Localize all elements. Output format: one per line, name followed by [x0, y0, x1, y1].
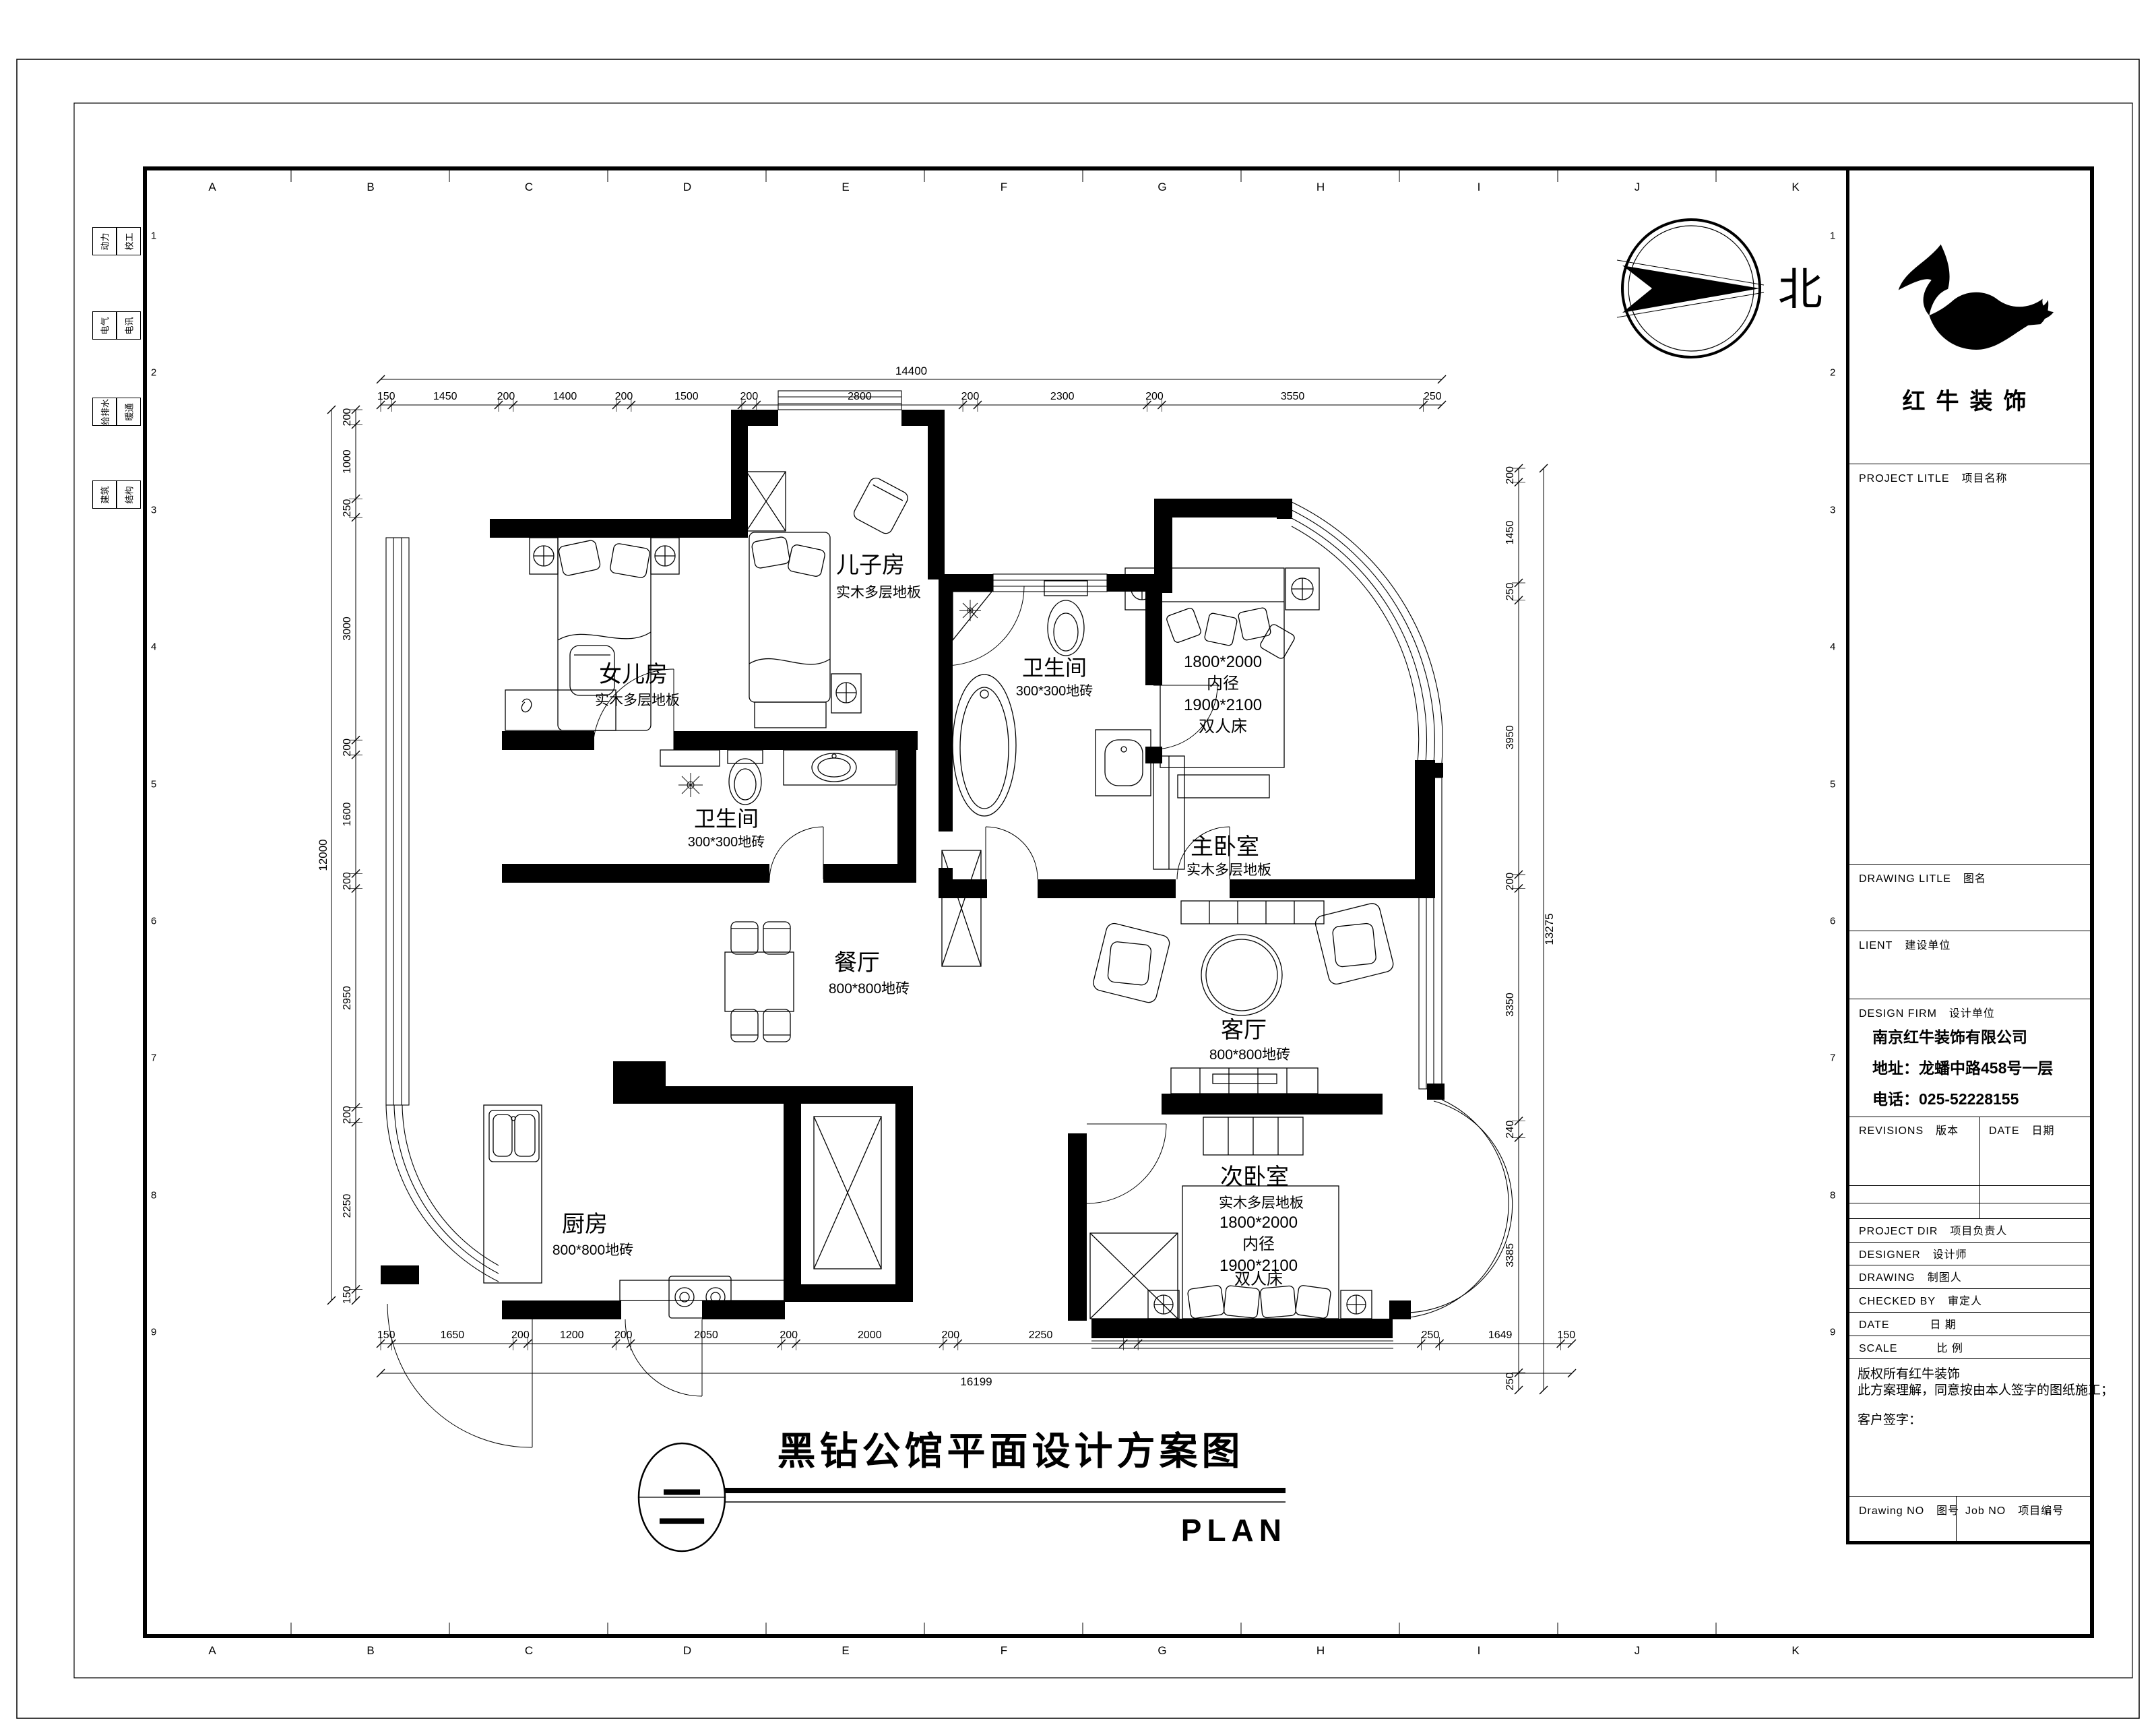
svg-text:1450: 1450: [433, 391, 457, 402]
svg-text:3350: 3350: [1504, 993, 1516, 1017]
north-arrow-icon: [1617, 220, 1764, 357]
svg-text:150: 150: [1557, 1329, 1575, 1341]
master-bed-note-3: 1900*2100: [1184, 696, 1262, 714]
row-number-1: 1: [1830, 230, 1835, 242]
sheet-index-number: 二: [639, 1468, 725, 1538]
row-number-4: 4: [151, 641, 156, 653]
svg-text:250: 250: [1424, 391, 1442, 402]
row-number-7: 7: [151, 1053, 156, 1064]
grid-letter-E: E: [842, 1644, 849, 1658]
row-number-9: 9: [1830, 1327, 1835, 1338]
row-number-6: 6: [1830, 916, 1835, 927]
field-project: PROJECT LITLE项目名称: [1859, 469, 2008, 485]
svg-text:2250: 2250: [1029, 1329, 1053, 1341]
svg-text:200: 200: [780, 1329, 798, 1341]
discipline-box: 动力: [92, 227, 117, 255]
grid-letter-J: J: [1635, 181, 1641, 194]
label-daughter: 女儿房: [599, 662, 668, 687]
grid-letter-I: I: [1478, 181, 1481, 194]
grid-letter-A: A: [208, 1644, 216, 1658]
discipline-box: 电气: [92, 311, 117, 340]
row-number-3: 3: [1830, 504, 1835, 515]
svg-text:200: 200: [511, 1329, 530, 1341]
grid-letter-A: A: [208, 181, 216, 194]
svg-text:200: 200: [1504, 873, 1516, 891]
discipline-box: 校工: [117, 227, 141, 255]
grid-letter-E: E: [842, 181, 849, 194]
svg-text:2250: 2250: [342, 1194, 353, 1218]
svg-text:13275: 13275: [1543, 913, 1556, 945]
svg-text:200: 200: [497, 391, 515, 402]
master-bed-note-2: 内径: [1207, 675, 1239, 693]
svg-text:200: 200: [1145, 391, 1164, 402]
brand-name: 红牛装饰: [1849, 383, 2090, 416]
field-designer: DESIGNER设计师: [1859, 1245, 1967, 1261]
master-bed-note-4: 双人床: [1199, 718, 1247, 736]
row-number-8: 8: [1830, 1189, 1835, 1201]
row-number-6: 6: [151, 916, 156, 927]
svg-text:2000: 2000: [858, 1329, 882, 1341]
svg-text:200: 200: [342, 1106, 353, 1124]
grid-letter-F: F: [1001, 1644, 1007, 1658]
discipline-box: 电讯: [117, 311, 141, 340]
grid-letter-D: D: [683, 1644, 691, 1658]
svg-text:2300: 2300: [1050, 391, 1075, 402]
row-number-2: 2: [1830, 367, 1835, 379]
second-bed-note-2: 内径: [1242, 1235, 1275, 1253]
svg-text:1200: 1200: [560, 1329, 584, 1341]
svg-text:14400: 14400: [895, 365, 927, 377]
grid-letter-C: C: [525, 181, 533, 194]
field-checked-by: CHECKED BY审定人: [1859, 1292, 1982, 1308]
label-bath-top-floor: 300*300地砖: [1016, 683, 1093, 699]
drawing-sheet: 女儿房 实木多层地板 儿子房 实木多层地板 卫生间 300*300地砖 主卧室 …: [0, 0, 2156, 1725]
svg-text:2050: 2050: [694, 1329, 718, 1341]
svg-text:200: 200: [1504, 466, 1516, 484]
field-drawing-title: DRAWING LITLE图名: [1859, 869, 1986, 885]
svg-text:3385: 3385: [1504, 1243, 1516, 1267]
grid-letter-H: H: [1317, 181, 1325, 194]
rednbull-logo-icon: [1889, 232, 2054, 377]
company-address: 地址：龙蟠中路458号一层: [1872, 1055, 2053, 1078]
svg-text:3850: 3850: [1267, 1329, 1292, 1341]
note-agreement: 此方案理解，同意按由本人签字的图纸施工；: [1858, 1380, 2114, 1398]
grid-letter-C: C: [525, 1644, 533, 1658]
north-label: 北: [1778, 264, 1822, 314]
plan-subtitle: PLAN: [1098, 1512, 1287, 1548]
svg-text:1500: 1500: [674, 391, 699, 402]
label-son: 儿子房: [836, 553, 905, 578]
field-scale-row: SCALE比 例: [1859, 1339, 1963, 1355]
row-number-5: 5: [151, 778, 156, 790]
svg-text:200: 200: [342, 872, 353, 890]
discipline-box: 结构: [117, 480, 141, 509]
svg-text:1600: 1600: [342, 803, 353, 827]
label-daughter-floor: 实木多层地板: [595, 693, 680, 708]
svg-text:200: 200: [1122, 1329, 1140, 1341]
svg-text:2800: 2800: [848, 391, 872, 402]
field-revisions: REVISIONS版本: [1859, 1121, 1959, 1137]
label-living-floor: 800*800地砖: [1209, 1047, 1290, 1063]
row-number-7: 7: [1830, 1053, 1835, 1064]
grid-ticks: [291, 168, 1716, 1636]
svg-text:200: 200: [342, 408, 353, 427]
svg-text:200: 200: [942, 1329, 960, 1341]
company-phone: 电话：025-52228155: [1872, 1086, 2019, 1109]
row-number-9: 9: [151, 1327, 156, 1338]
second-bed-note-4: 双人床: [1234, 1270, 1283, 1288]
label-bath-top: 卫生间: [1022, 656, 1087, 680]
label-master-floor: 实木多层地板: [1186, 862, 1271, 878]
grid-letter-F: F: [1001, 181, 1007, 194]
label-master: 主卧室: [1191, 834, 1259, 860]
svg-text:250: 250: [1504, 1373, 1516, 1391]
svg-text:3950: 3950: [1504, 725, 1516, 749]
label-second: 次卧室: [1220, 1164, 1289, 1190]
svg-text:3550: 3550: [1281, 391, 1305, 402]
field-project-dir: PROJECT DIR项目负责人: [1859, 1222, 2007, 1238]
svg-text:250: 250: [1504, 582, 1516, 600]
grid-letter-D: D: [683, 181, 691, 194]
row-number-8: 8: [151, 1189, 156, 1201]
svg-text:16199: 16199: [960, 1375, 992, 1388]
svg-text:12000: 12000: [317, 839, 329, 871]
field-client: LIENT建设单位: [1859, 936, 1951, 952]
svg-text:1400: 1400: [553, 391, 577, 402]
grid-letter-K: K: [1792, 181, 1799, 194]
row-number-5: 5: [1830, 778, 1835, 790]
label-bath-mid-floor: 300*300地砖: [688, 834, 765, 850]
svg-text:200: 200: [615, 391, 633, 402]
svg-text:2950: 2950: [342, 986, 353, 1010]
title-block: 红牛装饰 PROJECT LITLE项目名称 DRAWING LITLE图名 L…: [1846, 168, 2090, 1544]
svg-text:200: 200: [614, 1329, 633, 1341]
svg-text:1649: 1649: [1488, 1329, 1513, 1341]
svg-text:1450: 1450: [1504, 520, 1516, 544]
plan-title: 黑钻公馆平面设计方案图: [728, 1420, 1294, 1476]
grid-letter-J: J: [1635, 1644, 1641, 1658]
field-drawing-by: DRAWING制图人: [1859, 1268, 1962, 1284]
company-name: 南京红牛装饰有限公司: [1872, 1024, 2027, 1047]
label-kitchen: 厨房: [562, 1212, 608, 1237]
row-number-3: 3: [151, 504, 156, 515]
grid-letter-G: G: [1158, 1644, 1166, 1658]
svg-text:200: 200: [740, 391, 759, 402]
discipline-box: 建筑: [92, 480, 117, 509]
label-dining: 餐厅: [834, 950, 880, 976]
label-bath-mid: 卫生间: [694, 807, 759, 831]
discipline-box: 给排水: [92, 398, 117, 426]
svg-text:200: 200: [342, 739, 353, 757]
elevator-shaft: [814, 1117, 881, 1269]
field-date-row: DATE日 期: [1859, 1315, 1957, 1331]
label-living: 客厅: [1221, 1017, 1267, 1043]
field-design-firm: DESIGN FIRM设计单位: [1859, 1004, 1995, 1020]
field-job-no: Job NO项目编号: [1965, 1501, 2064, 1517]
field-date-col: DATE日期: [1989, 1121, 2055, 1137]
svg-text:150: 150: [377, 1329, 395, 1341]
svg-text:200: 200: [961, 391, 980, 402]
discipline-box: 暖通: [117, 398, 141, 426]
svg-text:150: 150: [377, 391, 395, 402]
row-number-2: 2: [151, 367, 156, 379]
svg-text:250: 250: [342, 499, 353, 517]
svg-text:3000: 3000: [342, 617, 353, 641]
grid-letter-K: K: [1792, 1644, 1799, 1658]
grid-letter-B: B: [367, 1644, 374, 1658]
grid-letter-I: I: [1478, 1644, 1481, 1658]
label-son-floor: 实木多层地板: [836, 585, 921, 600]
note-signature: 客户签字：: [1858, 1410, 1922, 1428]
svg-text:240: 240: [1504, 1121, 1516, 1139]
label-dining-floor: 800*800地砖: [829, 981, 910, 997]
master-bed-note-1: 1800*2000: [1184, 653, 1262, 671]
row-number-1: 1: [151, 230, 156, 242]
svg-text:250: 250: [1422, 1329, 1440, 1341]
grid-letter-B: B: [367, 181, 374, 194]
label-kitchen-floor: 800*800地砖: [552, 1243, 633, 1258]
field-drawing-no: Drawing NO图号: [1859, 1501, 1959, 1517]
second-bed-note-1: 1800*2000: [1219, 1214, 1298, 1232]
note-copyright: 版权所有红牛装饰: [1858, 1364, 1960, 1382]
svg-text:1000: 1000: [342, 449, 353, 474]
svg-text:150: 150: [342, 1286, 353, 1304]
grid-letter-H: H: [1317, 1644, 1325, 1658]
grid-letter-G: G: [1158, 181, 1166, 194]
svg-text:1650: 1650: [441, 1329, 465, 1341]
row-number-4: 4: [1830, 641, 1835, 653]
label-second-floor: 实木多层地板: [1219, 1195, 1304, 1211]
